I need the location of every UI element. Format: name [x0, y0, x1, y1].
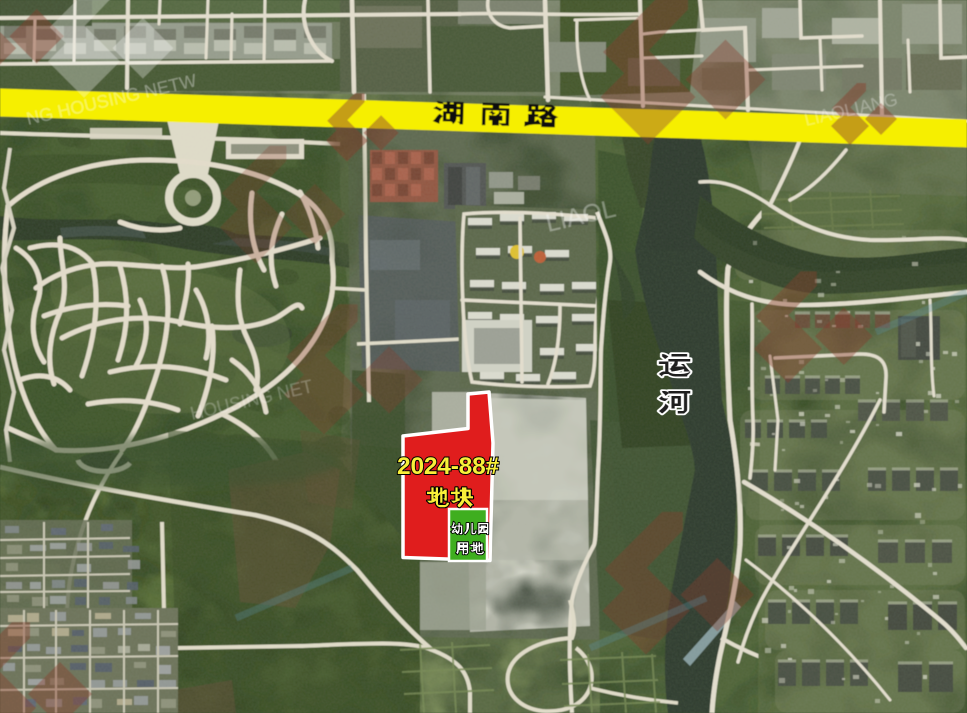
- svg-text:2024-88#: 2024-88#: [397, 453, 500, 480]
